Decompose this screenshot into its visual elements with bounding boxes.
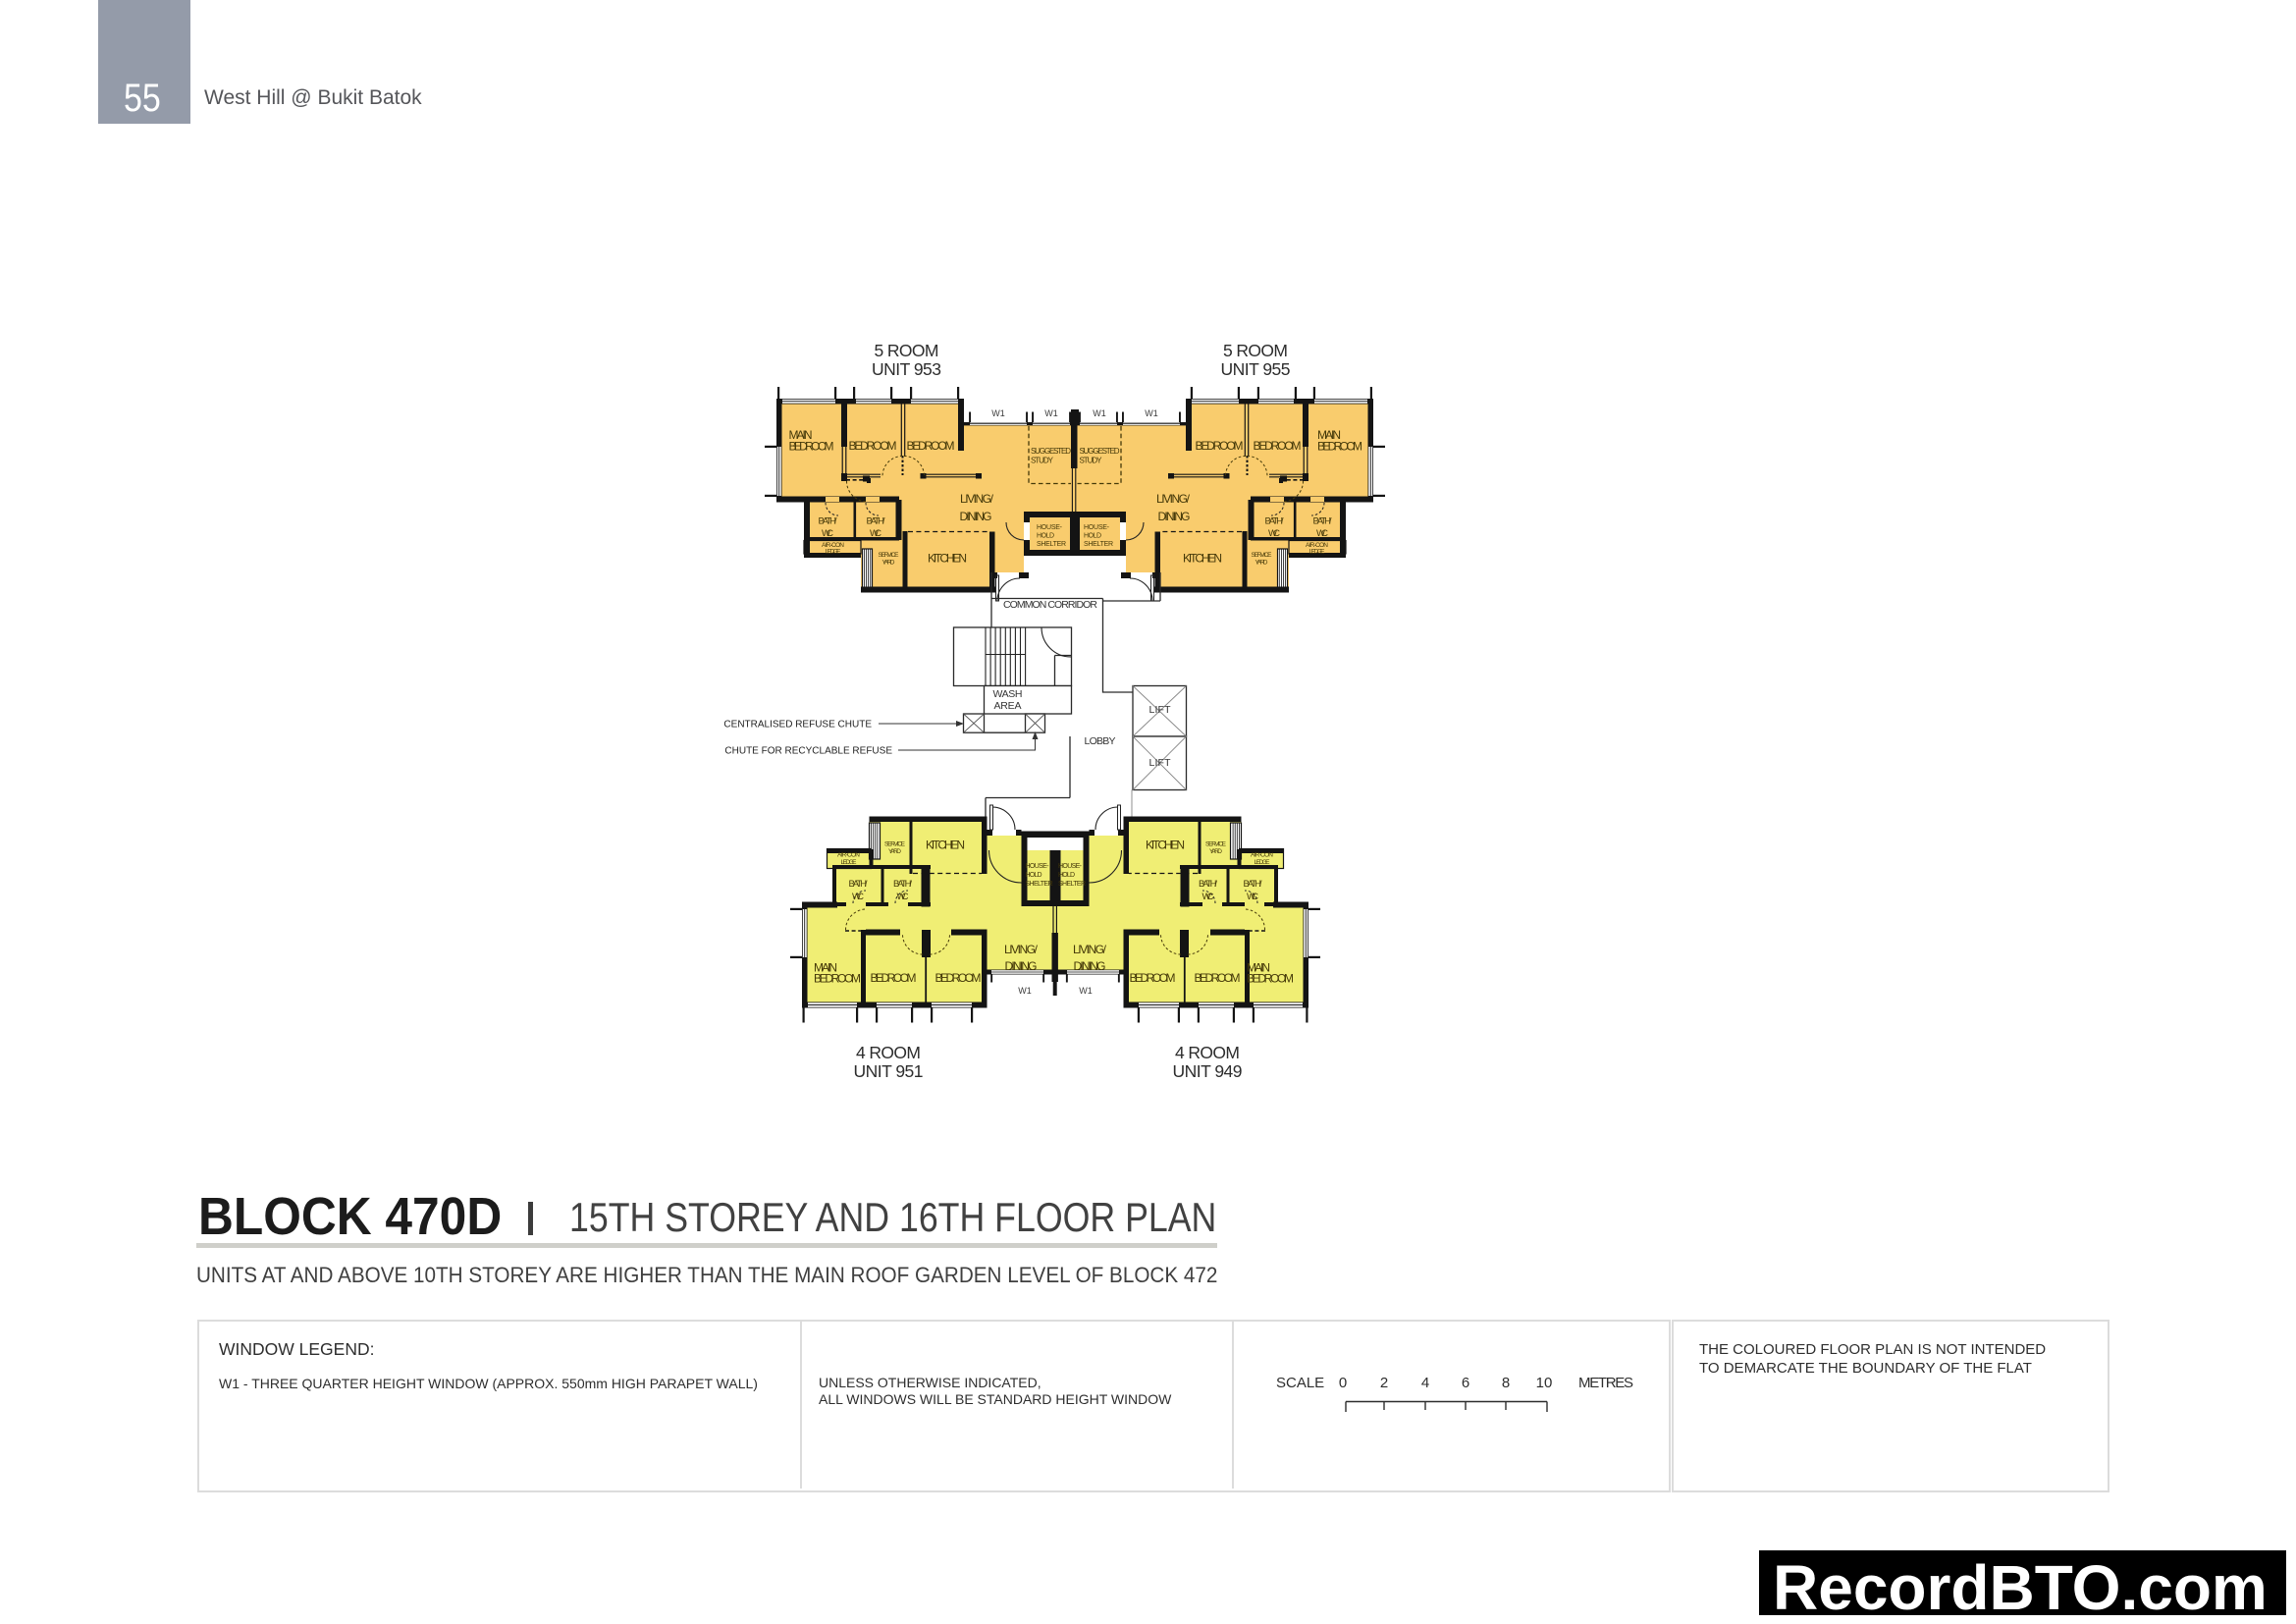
svg-text:BEDROOM: BEDROOM — [1317, 440, 1362, 454]
svg-text:DINING: DINING — [1158, 510, 1191, 523]
svg-text:LIVING/: LIVING/ — [960, 492, 994, 506]
svg-text:DINING: DINING — [960, 510, 992, 523]
svg-text:SUGGESTED: SUGGESTED — [1080, 447, 1120, 456]
svg-text:4: 4 — [1421, 1375, 1429, 1391]
svg-text:WC: WC — [1247, 892, 1258, 902]
svg-text:WC: WC — [852, 892, 864, 902]
svg-text:SERVICE: SERVICE — [1205, 841, 1227, 848]
svg-text:CHUTE FOR RECYCLABLE REFUSE: CHUTE FOR RECYCLABLE REFUSE — [724, 746, 892, 757]
svg-text:SERVICE: SERVICE — [884, 841, 906, 848]
svg-text:4 ROOM: 4 ROOM — [856, 1043, 921, 1062]
svg-text:5 ROOM: 5 ROOM — [875, 341, 939, 360]
svg-text:STUDY: STUDY — [1080, 457, 1103, 465]
svg-text:YARD: YARD — [882, 560, 895, 567]
svg-text:WASH: WASH — [993, 688, 1023, 700]
svg-text:SHELTER: SHELTER — [1084, 541, 1113, 548]
svg-text:BATH/: BATH/ — [1199, 879, 1217, 890]
svg-text:WC: WC — [822, 528, 833, 539]
svg-text:LOBBY: LOBBY — [1085, 735, 1116, 747]
svg-text:W1: W1 — [1079, 986, 1093, 996]
svg-text:LIVING/: LIVING/ — [1004, 943, 1039, 956]
svg-text:BATH/: BATH/ — [867, 516, 885, 527]
svg-text:HOLD: HOLD — [1037, 533, 1054, 540]
svg-text:HOLD: HOLD — [1026, 872, 1042, 879]
svg-text:WC: WC — [1316, 528, 1328, 539]
svg-text:KITCHEN: KITCHEN — [1146, 839, 1185, 852]
svg-text:STUDY: STUDY — [1031, 457, 1054, 465]
svg-text:SERVICE: SERVICE — [879, 552, 900, 559]
svg-text:WC: WC — [1202, 892, 1214, 902]
svg-text:WC: WC — [870, 528, 881, 539]
svg-text:LIVING/: LIVING/ — [1156, 492, 1191, 506]
svg-text:BEDROOM: BEDROOM — [907, 439, 955, 453]
svg-text:5 ROOM: 5 ROOM — [1223, 341, 1288, 360]
svg-text:HOUSE-: HOUSE- — [1037, 524, 1063, 531]
svg-text:BEDROOM: BEDROOM — [1195, 971, 1241, 985]
svg-text:BATH/: BATH/ — [893, 879, 912, 890]
svg-text:W1: W1 — [991, 408, 1005, 418]
svg-text:KITCHEN: KITCHEN — [1183, 552, 1222, 566]
svg-text:UNIT 955: UNIT 955 — [1221, 359, 1291, 379]
svg-text:6: 6 — [1462, 1375, 1469, 1391]
svg-text:BEDROOM: BEDROOM — [935, 971, 982, 985]
svg-text:METRES: METRES — [1578, 1375, 1633, 1391]
svg-text:BEDROOM: BEDROOM — [814, 972, 861, 986]
svg-text:WC: WC — [1268, 528, 1280, 539]
svg-text:LEDGE: LEDGE — [1309, 549, 1326, 556]
svg-text:BATH/: BATH/ — [1313, 516, 1332, 527]
svg-text:YARD: YARD — [1255, 560, 1268, 567]
svg-text:UNIT 953: UNIT 953 — [872, 359, 941, 379]
svg-text:HOLD: HOLD — [1084, 533, 1101, 540]
svg-text:LIVING/: LIVING/ — [1073, 943, 1107, 956]
svg-text:WC: WC — [897, 892, 909, 902]
svg-text:8: 8 — [1502, 1375, 1510, 1391]
svg-text:LIFT: LIFT — [1149, 757, 1172, 769]
svg-text:10: 10 — [1536, 1375, 1553, 1391]
svg-text:4 ROOM: 4 ROOM — [1175, 1043, 1240, 1062]
svg-text:BEDROOM: BEDROOM — [849, 439, 897, 453]
svg-text:W1: W1 — [1018, 986, 1032, 996]
svg-text:BATH/: BATH/ — [1244, 879, 1262, 890]
svg-text:BATH/: BATH/ — [1265, 516, 1284, 527]
svg-text:COMMON CORRIDOR: COMMON CORRIDOR — [1003, 599, 1097, 611]
svg-text:HOLD: HOLD — [1058, 872, 1075, 879]
svg-text:0: 0 — [1339, 1375, 1347, 1391]
svg-text:AREA: AREA — [994, 700, 1022, 712]
svg-text:W1: W1 — [1093, 408, 1106, 418]
svg-text:KITCHEN: KITCHEN — [928, 552, 967, 566]
svg-text:BATH/: BATH/ — [849, 879, 868, 890]
svg-text:SHELTER: SHELTER — [1058, 881, 1086, 888]
svg-text:BEDROOM: BEDROOM — [1130, 971, 1176, 985]
svg-text:LEDGE: LEDGE — [1255, 859, 1271, 866]
svg-text:W1: W1 — [1145, 408, 1158, 418]
svg-text:BEDROOM: BEDROOM — [789, 440, 834, 454]
svg-text:LEDGE: LEDGE — [841, 859, 858, 866]
svg-text:W1: W1 — [1044, 408, 1058, 418]
svg-text:BEDROOM: BEDROOM — [871, 971, 917, 985]
svg-text:HOUSE-: HOUSE- — [1084, 524, 1110, 531]
svg-text:2: 2 — [1380, 1375, 1388, 1391]
svg-text:AIR-CON: AIR-CON — [837, 852, 860, 859]
svg-text:KITCHEN: KITCHEN — [926, 839, 965, 852]
svg-text:BEDROOM: BEDROOM — [1247, 972, 1294, 986]
svg-text:UNIT 951: UNIT 951 — [854, 1061, 924, 1081]
svg-text:DINING: DINING — [1074, 959, 1106, 973]
svg-text:HOUSE-: HOUSE- — [1026, 863, 1050, 870]
svg-text:CENTRALISED REFUSE CHUTE: CENTRALISED REFUSE CHUTE — [723, 720, 872, 731]
svg-text:SUGGESTED: SUGGESTED — [1031, 447, 1071, 456]
svg-text:LEDGE: LEDGE — [826, 549, 842, 556]
svg-text:BEDROOM: BEDROOM — [1254, 439, 1302, 453]
svg-text:AIR-CON: AIR-CON — [1251, 852, 1273, 859]
svg-text:BATH/: BATH/ — [819, 516, 837, 527]
svg-text:BEDROOM: BEDROOM — [1196, 439, 1244, 453]
svg-text:SHELTER: SHELTER — [1026, 881, 1053, 888]
svg-text:SERVICE: SERVICE — [1252, 552, 1273, 559]
svg-text:UNIT 949: UNIT 949 — [1173, 1061, 1243, 1081]
svg-text:YARD: YARD — [1209, 848, 1222, 855]
svg-text:DINING: DINING — [1005, 959, 1038, 973]
svg-text:LIFT: LIFT — [1149, 704, 1172, 716]
svg-text:HOUSE-: HOUSE- — [1058, 863, 1083, 870]
svg-text:SHELTER: SHELTER — [1037, 541, 1066, 548]
svg-text:YARD: YARD — [888, 848, 901, 855]
